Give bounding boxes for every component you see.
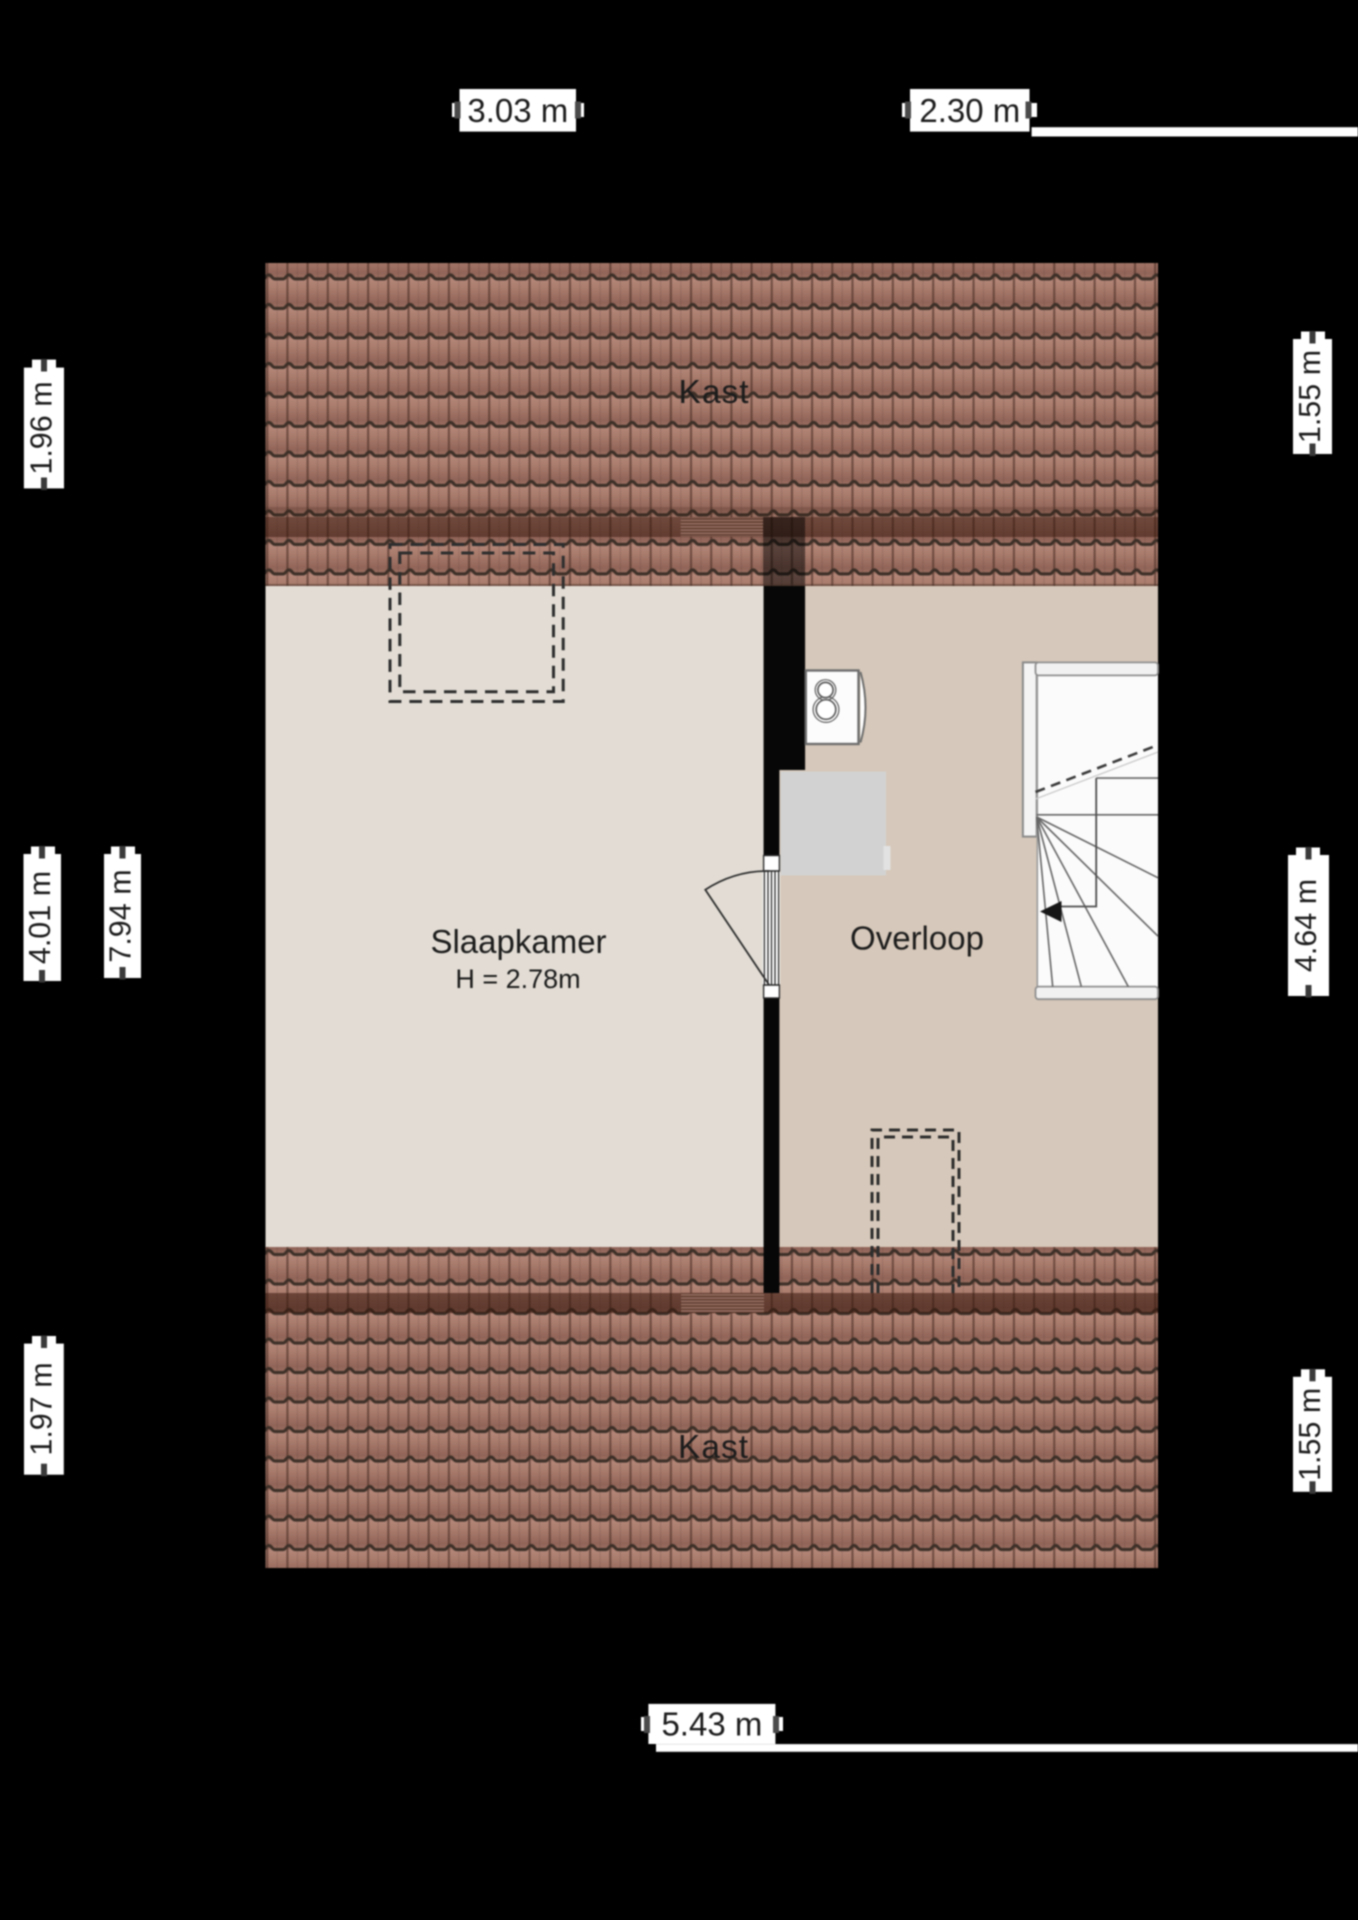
- svg-text:1.96 m: 1.96 m: [25, 381, 59, 474]
- svg-text:Kast: Kast: [678, 1429, 749, 1466]
- svg-text:Overloop: Overloop: [850, 920, 984, 957]
- svg-text:5.43 m: 5.43 m: [661, 1706, 762, 1743]
- svg-text:H = 2.78m: H = 2.78m: [455, 964, 580, 994]
- svg-text:2.30 m: 2.30 m: [919, 92, 1020, 129]
- svg-text:1.55 m: 1.55 m: [1293, 1388, 1327, 1481]
- svg-text:3.03 m: 3.03 m: [467, 92, 568, 129]
- svg-text:1.55 m: 1.55 m: [1293, 350, 1327, 443]
- svg-text:1.97 m: 1.97 m: [25, 1362, 59, 1455]
- svg-text:Kast: Kast: [678, 374, 749, 411]
- svg-text:4.01 m: 4.01 m: [23, 871, 57, 964]
- svg-text:Slaapkamer: Slaapkamer: [430, 923, 606, 960]
- svg-text:7.94 m: 7.94 m: [104, 869, 138, 962]
- svg-text:4.64 m: 4.64 m: [1289, 879, 1323, 972]
